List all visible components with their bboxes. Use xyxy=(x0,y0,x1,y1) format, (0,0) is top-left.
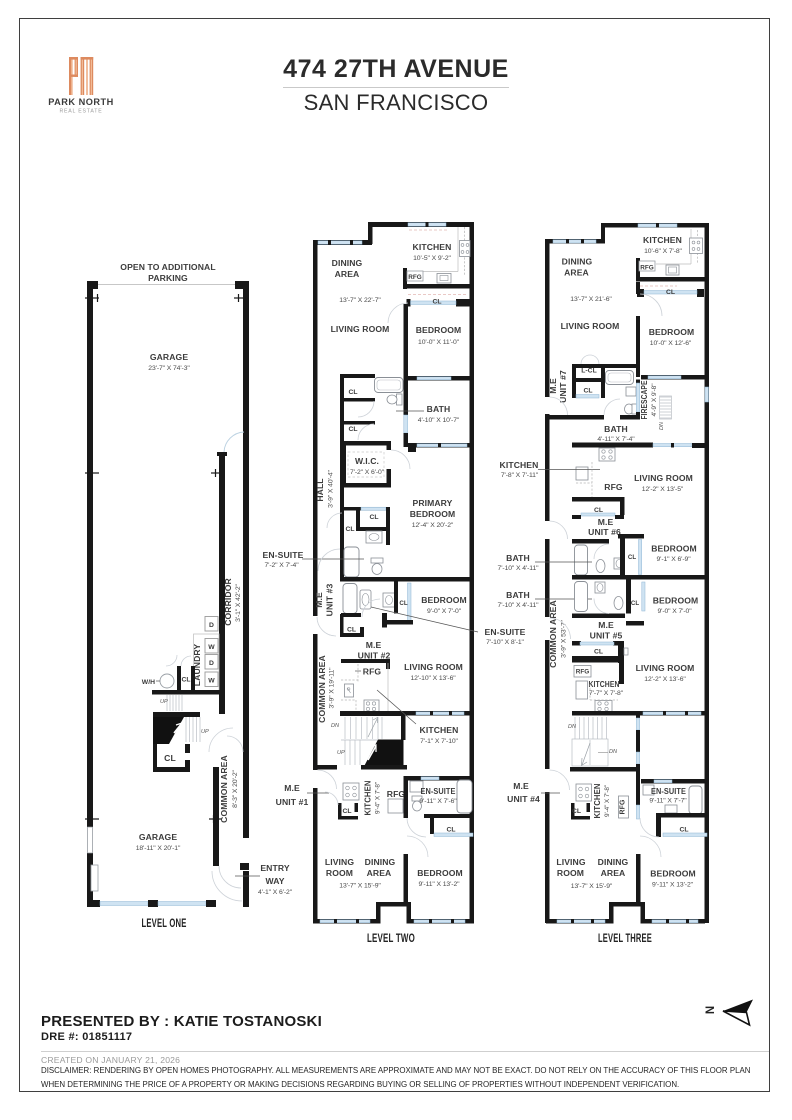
svg-text:13'-7" X 15'-9": 13'-7" X 15'-9" xyxy=(339,883,381,890)
svg-text:12'-2" X 13'-6": 12'-2" X 13'-6" xyxy=(644,676,686,683)
svg-text:LIVING ROOM: LIVING ROOM xyxy=(636,663,695,673)
svg-text:CL: CL xyxy=(348,426,357,433)
svg-text:RFG: RFG xyxy=(387,789,406,799)
svg-text:RFG: RFG xyxy=(620,799,627,815)
svg-text:7'-7" X 7'-8": 7'-7" X 7'-8" xyxy=(589,690,624,697)
svg-text:UNIT #6: UNIT #6 xyxy=(588,527,621,537)
svg-text:W.I.C.: W.I.C. xyxy=(355,456,379,466)
svg-text:UNIT #4: UNIT #4 xyxy=(507,794,540,804)
svg-text:CL: CL xyxy=(679,827,688,834)
svg-text:CL: CL xyxy=(594,649,603,656)
svg-text:KITCHEN: KITCHEN xyxy=(643,235,682,245)
svg-text:CL: CL xyxy=(432,299,441,306)
svg-text:CL: CL xyxy=(181,677,190,684)
svg-text:OPEN TO ADDITIONAL: OPEN TO ADDITIONAL xyxy=(120,262,215,272)
svg-text:UNIT #3: UNIT #3 xyxy=(325,584,335,617)
svg-text:EN-SUITE: EN-SUITE xyxy=(421,786,456,796)
svg-text:12'-4" X 20'-2": 12'-4" X 20'-2" xyxy=(412,522,454,529)
svg-text:LIVING ROOM: LIVING ROOM xyxy=(331,324,390,334)
svg-text:CL: CL xyxy=(628,554,636,561)
svg-text:BEDROOM: BEDROOM xyxy=(410,509,456,519)
svg-text:M.E: M.E xyxy=(598,620,614,630)
svg-text:BEDROOM: BEDROOM xyxy=(653,596,699,606)
svg-text:BEDROOM: BEDROOM xyxy=(421,595,467,605)
svg-text:PRIMARY: PRIMARY xyxy=(412,498,452,508)
svg-text:7'-2" X 7'-4": 7'-2" X 7'-4" xyxy=(264,562,299,569)
svg-text:EN-SUITE: EN-SUITE xyxy=(263,550,304,560)
svg-text:KITCHEN: KITCHEN xyxy=(363,781,373,816)
svg-text:BATH: BATH xyxy=(506,553,530,563)
svg-text:CL: CL xyxy=(446,827,455,834)
svg-text:9'-11" X 7'-6": 9'-11" X 7'-6" xyxy=(419,798,457,805)
svg-text:KITCHEN: KITCHEN xyxy=(413,242,452,252)
svg-text:M.E: M.E xyxy=(598,517,614,527)
svg-text:WAY: WAY xyxy=(265,876,284,886)
svg-text:COMMON AREA: COMMON AREA xyxy=(317,655,327,723)
svg-text:D: D xyxy=(209,660,214,667)
svg-text:RFG: RFG xyxy=(576,669,590,676)
svg-text:ROOM: ROOM xyxy=(557,868,584,878)
svg-text:BATH: BATH xyxy=(506,590,530,600)
svg-text:8'-3" X 20'-2": 8'-3" X 20'-2" xyxy=(232,769,239,807)
svg-text:DINING: DINING xyxy=(598,857,629,867)
svg-text:4'-11" X 7'-4": 4'-11" X 7'-4" xyxy=(597,436,635,443)
svg-text:DN: DN xyxy=(331,723,340,729)
svg-text:DN: DN xyxy=(609,749,618,755)
svg-text:9'-11" X 13'-2": 9'-11" X 13'-2" xyxy=(419,881,461,888)
svg-text:UNIT #5: UNIT #5 xyxy=(590,631,623,641)
svg-text:CL: CL xyxy=(594,507,603,514)
svg-text:CL: CL xyxy=(347,627,356,634)
svg-text:10'-6" X 7'-8": 10'-6" X 7'-8" xyxy=(644,248,682,255)
svg-text:4'-1" X 6'-2": 4'-1" X 6'-2" xyxy=(258,889,293,896)
svg-text:KITCHEN: KITCHEN xyxy=(500,460,539,470)
svg-text:AREA: AREA xyxy=(564,268,589,278)
svg-text:CL: CL xyxy=(631,600,639,607)
svg-text:UNIT #7: UNIT #7 xyxy=(558,370,568,403)
svg-text:LEVEL ONE: LEVEL ONE xyxy=(142,918,187,930)
svg-text:UP: UP xyxy=(201,729,209,735)
svg-text:CL: CL xyxy=(399,600,407,607)
svg-text:CORRIDOR: CORRIDOR xyxy=(223,578,233,626)
svg-text:7'-8" X 7'-11": 7'-8" X 7'-11" xyxy=(501,472,539,479)
svg-text:W/H: W/H xyxy=(142,679,155,686)
svg-text:12'-2" X 13'-5": 12'-2" X 13'-5" xyxy=(642,486,684,493)
svg-text:CL: CL xyxy=(164,753,176,763)
svg-text:RFG: RFG xyxy=(604,482,623,492)
svg-text:M.E: M.E xyxy=(284,783,300,793)
svg-text:13'-7" X 22'-7": 13'-7" X 22'-7" xyxy=(339,297,381,304)
svg-text:7'-10" X 4'-11": 7'-10" X 4'-11" xyxy=(498,565,540,572)
svg-text:AREA: AREA xyxy=(367,868,392,878)
svg-text:COMMON AREA: COMMON AREA xyxy=(548,600,558,668)
svg-text:DINING: DINING xyxy=(562,257,593,267)
svg-text:M.E: M.E xyxy=(366,640,382,650)
svg-text:BEDROOM: BEDROOM xyxy=(650,869,696,879)
svg-text:LEVEL TWO: LEVEL TWO xyxy=(367,933,415,945)
svg-text:LIVING: LIVING xyxy=(325,857,354,867)
svg-text:COMMON AREA: COMMON AREA xyxy=(219,755,229,823)
svg-text:EN-SUITE: EN-SUITE xyxy=(485,627,526,637)
svg-text:CL: CL xyxy=(369,514,378,521)
svg-text:AREA: AREA xyxy=(335,269,360,279)
svg-text:W: W xyxy=(208,678,215,685)
svg-text:CL: CL xyxy=(342,808,351,815)
svg-text:9'-11" X 7'-7": 9'-11" X 7'-7" xyxy=(649,798,687,805)
svg-text:BEDROOM: BEDROOM xyxy=(649,327,695,337)
svg-text:9'-1" X 6'-9": 9'-1" X 6'-9" xyxy=(656,556,691,563)
svg-text:9'-0" X 7'-0": 9'-0" X 7'-0" xyxy=(657,608,692,615)
svg-text:EN-SUITE: EN-SUITE xyxy=(651,786,686,796)
svg-text:N: N xyxy=(705,1006,717,1014)
svg-text:KITCHEN: KITCHEN xyxy=(420,725,459,735)
svg-text:RFG: RFG xyxy=(640,265,654,272)
svg-text:ROOM: ROOM xyxy=(326,868,353,878)
svg-text:FIRESCAPE: FIRESCAPE xyxy=(639,380,649,419)
svg-text:9'-4" X 7'-8": 9'-4" X 7'-8" xyxy=(375,781,382,814)
svg-text:9'-11" X 13'-2": 9'-11" X 13'-2" xyxy=(652,882,694,889)
svg-text:7'-10" X 4'-11": 7'-10" X 4'-11" xyxy=(498,602,540,609)
svg-text:DINING: DINING xyxy=(365,857,396,867)
svg-text:4'-9" X 9'-8": 4'-9" X 9'-8" xyxy=(651,383,658,417)
svg-text:BATH: BATH xyxy=(604,424,628,434)
svg-text:LIVING ROOM: LIVING ROOM xyxy=(634,473,693,483)
svg-text:M.E: M.E xyxy=(548,378,558,394)
svg-text:CL: CL xyxy=(345,526,354,533)
svg-text:DINING: DINING xyxy=(332,258,363,268)
svg-text:CL: CL xyxy=(583,388,592,395)
svg-text:7'-2" X 6'-0": 7'-2" X 6'-0" xyxy=(350,469,385,476)
svg-text:BEDROOM: BEDROOM xyxy=(417,868,463,878)
svg-text:9'-4" X 7'-8": 9'-4" X 7'-8" xyxy=(604,784,611,817)
svg-text:M.E: M.E xyxy=(314,592,324,608)
svg-text:3'-9" X 40'-4": 3'-9" X 40'-4" xyxy=(328,469,335,507)
svg-text:13'-7" X 15'-9": 13'-7" X 15'-9" xyxy=(571,883,613,890)
svg-text:UNIT #1: UNIT #1 xyxy=(276,797,309,807)
svg-text:10'-5" X 9'-2": 10'-5" X 9'-2" xyxy=(413,255,451,262)
svg-text:LIVING ROOM: LIVING ROOM xyxy=(404,662,463,672)
svg-text:4'-10" X 10'-7": 4'-10" X 10'-7" xyxy=(418,417,460,424)
svg-text:KITCHEN: KITCHEN xyxy=(592,784,602,819)
svg-text:RFG: RFG xyxy=(363,667,382,677)
svg-text:10'-0" X 11'-0": 10'-0" X 11'-0" xyxy=(418,339,460,346)
svg-text:7'-10" X 8'-1": 7'-10" X 8'-1" xyxy=(486,639,524,646)
svg-text:L-CL: L-CL xyxy=(581,368,596,375)
svg-text:CL: CL xyxy=(572,808,581,815)
svg-text:RFG: RFG xyxy=(408,274,422,281)
svg-text:7'-1" X 7'-10": 7'-1" X 7'-10" xyxy=(420,738,458,745)
svg-text:D: D xyxy=(209,622,214,629)
svg-text:ENTRY: ENTRY xyxy=(260,863,289,873)
svg-text:CL: CL xyxy=(348,389,357,396)
svg-text:12'-10" X 13'-6": 12'-10" X 13'-6" xyxy=(410,675,456,682)
svg-text:10'-0" X 12'-6": 10'-0" X 12'-6" xyxy=(650,340,692,347)
svg-text:23'-7" X 74'-3": 23'-7" X 74'-3" xyxy=(148,365,190,372)
svg-text:BEDROOM: BEDROOM xyxy=(416,325,462,335)
svg-text:13'-7" X 21'-6": 13'-7" X 21'-6" xyxy=(570,296,612,303)
svg-text:PARKING: PARKING xyxy=(148,273,188,283)
svg-text:W: W xyxy=(208,644,215,651)
svg-text:9'-0" X 7'-0": 9'-0" X 7'-0" xyxy=(427,608,462,615)
svg-text:M.E: M.E xyxy=(513,781,529,791)
svg-text:UP: UP xyxy=(337,750,345,756)
svg-text:BATH: BATH xyxy=(427,404,451,414)
svg-text:LIVING: LIVING xyxy=(556,857,585,867)
svg-text:GARAGE: GARAGE xyxy=(150,352,188,362)
svg-text:HALL: HALL xyxy=(315,478,325,501)
svg-text:AREA: AREA xyxy=(601,868,626,878)
svg-text:18'-11" X 20'-1": 18'-11" X 20'-1" xyxy=(136,845,181,852)
svg-text:KITCHEN: KITCHEN xyxy=(589,679,620,689)
svg-text:DN: DN xyxy=(659,421,665,430)
svg-text:LIVING ROOM: LIVING ROOM xyxy=(561,321,620,331)
svg-text:3'-1" X 42'-2": 3'-1" X 42'-2" xyxy=(235,583,242,621)
svg-text:3'-9" X 19'-11": 3'-9" X 19'-11" xyxy=(329,667,336,709)
svg-text:DN: DN xyxy=(568,724,577,730)
svg-text:LEVEL THREE: LEVEL THREE xyxy=(598,933,652,945)
svg-text:CL: CL xyxy=(666,289,675,296)
svg-text:GARAGE: GARAGE xyxy=(139,832,177,842)
svg-text:3'-9" X 53'-7": 3'-9" X 53'-7" xyxy=(561,619,568,657)
svg-text:BEDROOM: BEDROOM xyxy=(651,544,697,554)
svg-text:UP: UP xyxy=(160,699,168,705)
